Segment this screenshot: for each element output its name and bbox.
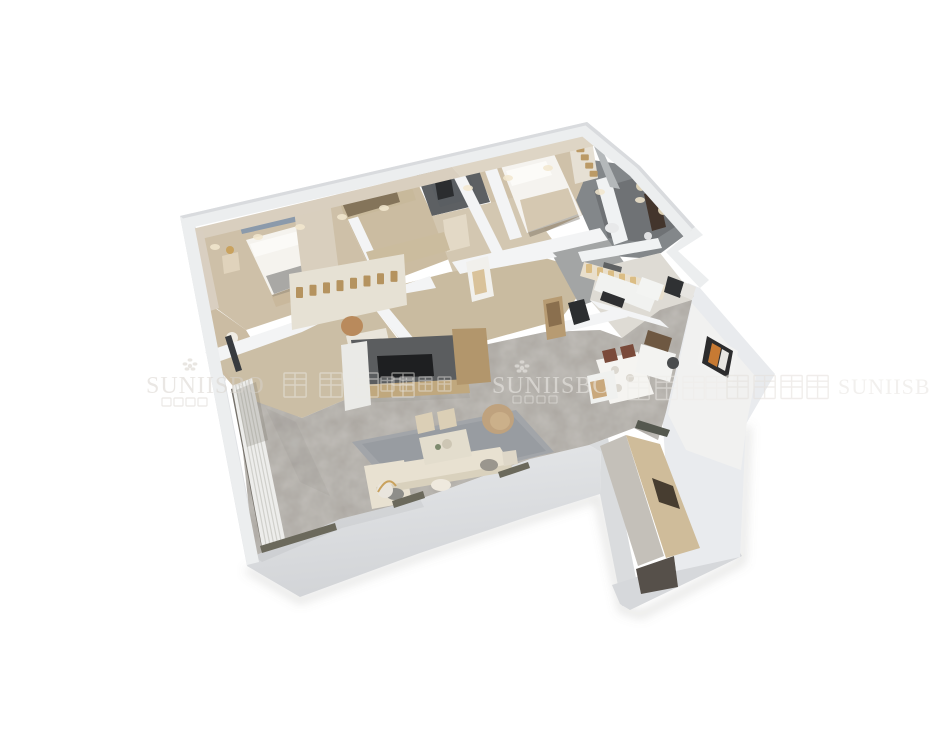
svg-text:SUNIISBO: SUNIISBO bbox=[492, 373, 611, 399]
svg-text:SUNIISBO: SUNIISBO bbox=[146, 373, 265, 399]
svg-text:SUNIISB: SUNIISB bbox=[838, 374, 931, 399]
